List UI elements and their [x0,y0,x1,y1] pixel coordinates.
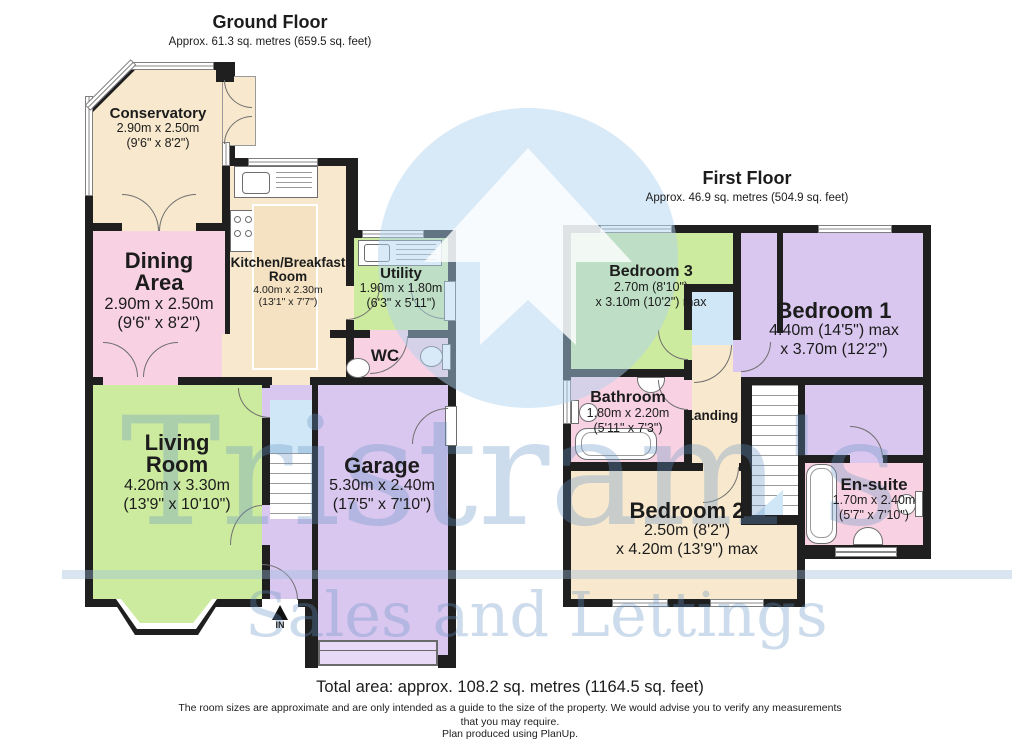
entrance-arrow-icon [272,605,288,620]
disclaimer: The room sizes are approximate and are o… [170,702,850,729]
ground-floor-subtitle: Approx. 61.3 sq. metres (659.5 sq. feet) [120,36,420,48]
window [362,230,424,238]
wall-segment [85,223,122,231]
door-opening [222,334,230,377]
door-opening [262,505,270,545]
room-label-conservatory: Conservatory 2.90m x 2.50m (9'6" x 8'2") [95,106,221,151]
room-label-bathroom: Bathroom 1.80m x 2.20m (5'11" x 7'3") [570,390,686,436]
kitchen-sink-icon [242,172,270,194]
window [248,158,318,166]
stairs-bulkhead [270,400,312,453]
garage-door [318,640,438,666]
door-opening [272,377,310,385]
hob-burner [234,230,241,237]
window [818,225,892,233]
staircase-icon [270,453,312,519]
window [710,599,764,607]
window [85,96,93,196]
room-label-living: Living Room 4.20m x 3.30m (13'9" x 10'10… [98,432,256,515]
first-floor-header: First Floor Approx. 46.9 sq. metres (504… [597,168,897,204]
window [612,599,668,607]
first-floor-subtitle: Approx. 46.9 sq. metres (504.9 sq. feet) [597,192,897,204]
hob-burner [245,216,252,223]
toilet-icon [420,346,443,367]
hob-burner [234,216,241,223]
window [835,547,897,557]
room-label-kitchen: Kitchen/Breakfast Room 4.00m x 2.30m (13… [227,256,349,308]
room-label-garage: Garage 5.30m x 2.40m (17'5" x 7'10") [318,455,446,515]
door-opening [733,340,741,372]
ground-floor-header: Ground Floor Approx. 61.3 sq. metres (65… [120,12,420,48]
door-opening [103,377,178,385]
total-area: Total area: approx. 108.2 sq. metres (11… [160,678,860,697]
wall-segment [262,418,270,505]
room-label-bedroom1: Bedroom 1 4.40m (14'5") max x 3.70m (12'… [748,300,920,360]
toilet-icon [442,344,451,370]
window [130,62,214,70]
staircase-icon [752,385,798,515]
entrance-label: IN [266,621,294,630]
room-label-bedroom2: Bedroom 2 2.50m (8'2") x 4.20m (13'9") m… [592,500,782,560]
window [600,225,672,233]
room-label-landing: Landing [676,409,748,423]
produced-by: Plan produced using PlanUp. [170,728,850,740]
first-floor-title: First Floor [597,168,897,189]
utility-sink-icon [364,244,390,262]
room-label-ensuite: En-suite 1.70m x 2.40m (5'7" x 7'10") [830,476,918,523]
room-label-wc: WC [355,347,415,364]
chimney [216,62,234,82]
window [222,142,230,166]
wall-segment [741,385,752,515]
room-label-bedroom3: Bedroom 3 2.70m (8'10") x 3.10m (10'2") … [575,264,727,310]
garage-door-line [320,650,436,651]
floorplan-page: Tristram's Sales and Lettings Ground Flo… [0,0,1020,742]
wall-segment [196,223,233,231]
ground-floor-title: Ground Floor [120,12,420,33]
room-label-dining: Dining Area 2.90m x 2.50m (9'6" x 8'2") [93,250,225,334]
hob-burner [245,230,252,237]
drainer-icon [396,244,436,260]
drainer-icon [276,172,312,192]
room-label-utility: Utility 1.90m x 1.80m (6'3" x 5'11") [348,266,454,311]
